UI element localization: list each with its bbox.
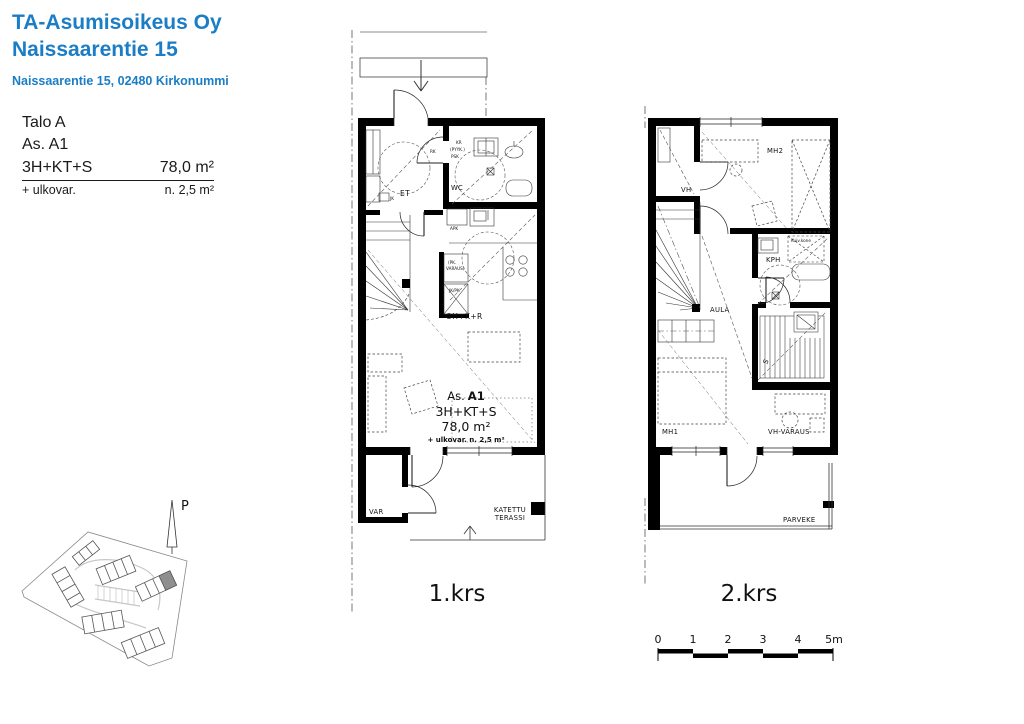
floor2-vh-varaus-furniture — [775, 394, 825, 432]
room-label-et: ET — [400, 189, 410, 198]
scale-tick-3: 3 — [760, 633, 767, 646]
floor1-plan: ET WC OH+K+R VAR KATETTU TERASSI KR (PYY… — [352, 30, 545, 612]
room-label-vh: VH — [681, 186, 691, 194]
floor1-wc-fixtures — [452, 130, 533, 204]
floor2-doors — [694, 162, 790, 486]
unit-extra-line: + ulkovar. n. 2,5 m² — [427, 436, 504, 444]
label-dryer: Kuiv.kone — [791, 238, 811, 243]
floor2-aula-fixtures — [658, 236, 752, 378]
room-label-kph: KPH — [766, 256, 781, 264]
site-buildings — [52, 541, 177, 659]
floor1-unit-text: As.A1 3H+KT+S 78,0 m² + ulkovar. n. 2,5 … — [427, 389, 504, 444]
floor2-caption: 2.krs — [721, 581, 778, 607]
floor2-plan: MH2 VH KPH AULA S MH1 VH-VARAUS PARVEKE … — [645, 106, 838, 607]
floor2-sauna-fixtures — [758, 312, 826, 380]
room-label-living: OH+K+R — [446, 312, 483, 321]
floor2-labels: MH2 VH KPH AULA S MH1 VH-VARAUS PARVEKE … — [662, 147, 815, 524]
floor2-vh-fixtures — [658, 128, 694, 194]
room-label-wc: WC — [451, 184, 463, 192]
unit-apartment-line: As.A1 — [447, 389, 484, 403]
terrace-label-line2: TERASSI — [494, 514, 525, 522]
scale-tick-1: 1 — [690, 633, 697, 646]
label-apk: APK — [450, 226, 458, 231]
label-pk-varaus-1: (PK. — [448, 260, 456, 265]
room-label-vh-varaus: VH-VARAUS — [768, 428, 810, 436]
floor-plan-page: TA-Asumisoikeus Oy Naissaarentie 15 Nais… — [0, 0, 1024, 724]
floor2-mh2-furniture — [702, 132, 830, 232]
scale-tick-2: 2 — [725, 633, 732, 646]
site-map: P — [22, 499, 189, 666]
room-label-mh1: MH1 — [662, 428, 678, 436]
room-label-var: VAR — [369, 508, 384, 516]
scale-tick-5m: 5m — [825, 633, 843, 646]
plan-drawing: ET WC OH+K+R VAR KATETTU TERASSI KR (PYY… — [0, 0, 1024, 724]
unit-area-line: 78,0 m² — [442, 419, 491, 434]
room-label-mh2: MH2 — [767, 147, 783, 155]
label-kr: KR — [456, 140, 462, 145]
label-pk-varaus-2: VARAUS) — [446, 266, 465, 271]
scale-tick-0: 0 — [655, 633, 662, 646]
scale-bar: 0 1 2 3 4 5m — [655, 633, 843, 661]
unit-layout-line: 3H+KT+S — [435, 404, 496, 419]
north-arrow-icon — [167, 500, 177, 554]
label-jkpk: JK/PK — [448, 288, 460, 293]
floor1-stairs — [366, 215, 410, 320]
label-jk: JK — [389, 196, 394, 201]
room-label-sauna: S — [762, 358, 771, 366]
floor2-kph-fixtures — [758, 236, 830, 305]
room-label-aula: AULA — [710, 306, 729, 314]
scale-tick-4: 4 — [795, 633, 802, 646]
entrance-arrow-icon — [414, 60, 428, 91]
site-boundary — [22, 532, 187, 666]
floor2-stairs — [656, 202, 700, 312]
floor1-terrace — [410, 455, 545, 540]
terrace-arrow-icon — [464, 526, 476, 540]
floor2-openings — [672, 117, 793, 456]
room-label-parveke: PARVEKE — [783, 516, 815, 524]
floor2-mh1-furniture — [658, 330, 748, 444]
north-label: P — [181, 499, 189, 514]
label-psk: PSK — [451, 154, 459, 159]
floor1-kitchen-fixtures — [444, 208, 537, 314]
floor1-caption: 1.krs — [429, 581, 486, 607]
label-pyyk: (PYYK.) — [450, 147, 465, 152]
site-parking — [98, 585, 134, 605]
label-rk: RK — [430, 149, 436, 154]
terrace-label-line1: KATETTU — [494, 506, 526, 514]
